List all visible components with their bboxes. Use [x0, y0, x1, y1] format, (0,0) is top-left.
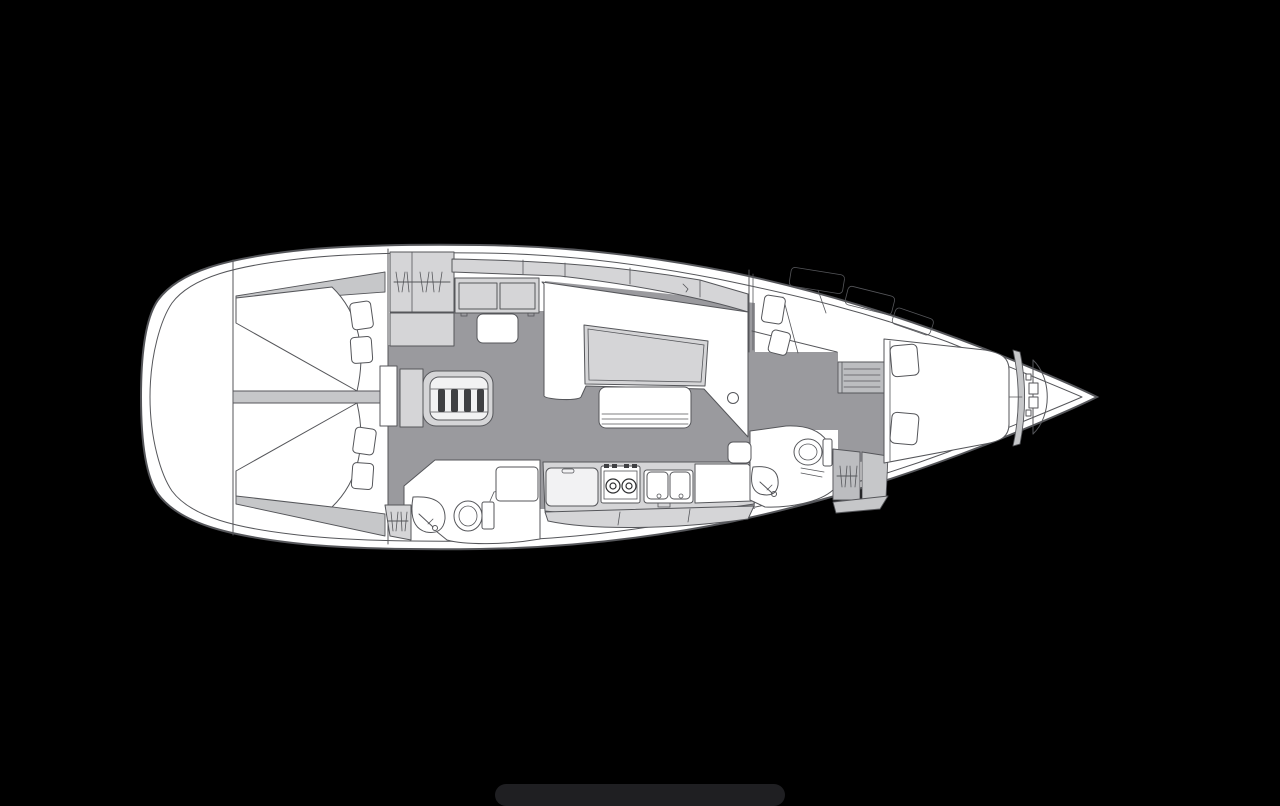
engine-box-corridor — [233, 391, 389, 403]
toilet-bowl — [794, 439, 822, 465]
toilet-tank — [482, 502, 494, 529]
basin — [752, 467, 779, 495]
cabin-door-opening — [380, 366, 397, 426]
shower-seat — [496, 467, 538, 501]
hanging-locker-port-aft — [390, 252, 454, 346]
galley — [543, 462, 757, 528]
center-bench — [599, 387, 691, 428]
stove-knob — [624, 464, 629, 468]
stove-2-burner — [601, 464, 640, 503]
vanity-shelves — [838, 362, 884, 393]
head-step — [728, 442, 751, 463]
aft-cabinet — [390, 313, 454, 346]
step-tread — [438, 389, 445, 412]
fridge — [546, 468, 598, 506]
stove-frame — [601, 466, 640, 503]
step-tread — [451, 389, 458, 412]
boat-interior-plan — [0, 0, 1280, 806]
double-sink — [644, 470, 693, 507]
step-tread — [477, 389, 484, 412]
vanity-box — [838, 362, 884, 393]
steps-platform — [400, 369, 423, 427]
pillow — [351, 462, 374, 489]
v-berth — [884, 339, 1009, 463]
chart-table-seat — [477, 314, 518, 343]
worktop-white — [695, 464, 754, 503]
chart-table-door — [459, 283, 497, 309]
pillow — [761, 295, 786, 325]
between-cabins-strip — [233, 391, 389, 403]
pillow — [349, 301, 374, 331]
mast-post — [728, 393, 739, 404]
screenshot-canvas — [0, 0, 1280, 806]
pillow — [890, 344, 920, 377]
bow-fitting — [1029, 397, 1038, 408]
stove-knob — [632, 464, 637, 468]
pillow — [350, 336, 373, 363]
stove-knob — [604, 464, 609, 468]
pillow — [352, 427, 376, 456]
aft-head — [404, 460, 540, 544]
bow-fitting-small — [1026, 374, 1031, 380]
pillow — [890, 412, 920, 445]
bottom-shadow — [495, 784, 785, 806]
stove-knob — [612, 464, 617, 468]
companionway-steps — [400, 369, 493, 427]
step-tread — [464, 389, 471, 412]
bow-fitting — [1029, 383, 1038, 394]
chart-table-door — [500, 283, 535, 309]
bow-fitting-small — [1026, 410, 1031, 416]
toilet-tank — [823, 439, 832, 466]
forward-cabin-floor — [748, 352, 838, 430]
toilet-bowl — [454, 501, 482, 531]
